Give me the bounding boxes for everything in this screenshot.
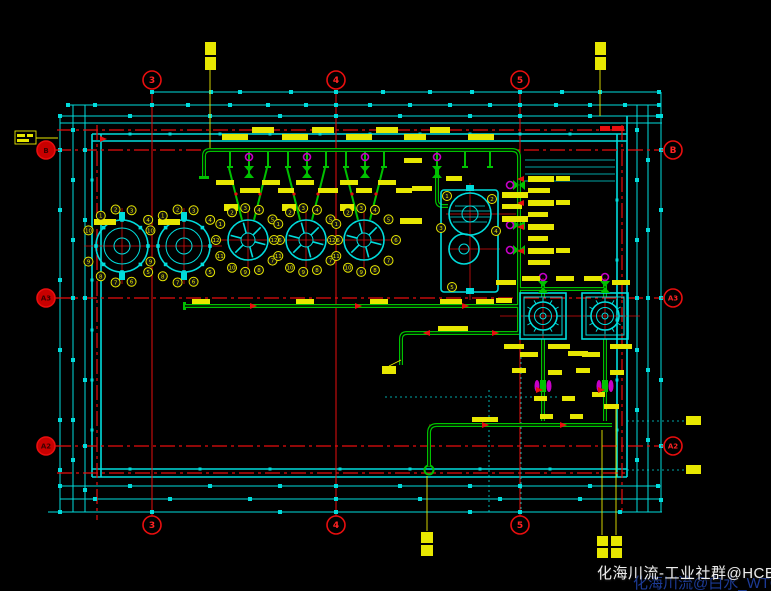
pipe-label-block — [240, 188, 260, 193]
vessel-flange-tick — [164, 263, 168, 267]
dimension-tick — [278, 510, 282, 514]
pipe-label-block — [502, 204, 522, 209]
vessel-flange-tick — [182, 270, 186, 274]
dimension-tick — [468, 510, 472, 514]
dimension-tick — [289, 90, 293, 94]
agitator-blade — [243, 223, 246, 234]
pipe-label-block — [296, 180, 314, 185]
dimension-tick — [623, 103, 627, 107]
grid-bubble-label: 3 — [149, 76, 155, 86]
dimension-tick — [428, 90, 432, 94]
dimension-tick — [659, 114, 663, 118]
valve-body — [600, 281, 610, 287]
callout-number: 5 — [146, 270, 150, 276]
dimension-tick — [150, 103, 154, 107]
grid-bubble-label: A3 — [668, 295, 678, 303]
grid-bubble: A3 — [664, 289, 682, 307]
grid-bubble-label: A2 — [668, 443, 678, 451]
dimension-tick — [128, 114, 132, 118]
agitator-blade — [308, 247, 311, 258]
grid-bubble: 5 — [511, 516, 529, 534]
pipe-label-block — [262, 180, 280, 185]
grid-bubble: A2 — [37, 437, 55, 455]
pipe-label-block — [604, 404, 619, 409]
pipe-label-block — [611, 536, 622, 546]
wall-tick — [219, 133, 222, 136]
building-walls — [92, 116, 684, 512]
dimension-tick — [83, 378, 87, 382]
dimension-tick — [228, 103, 232, 107]
dimension-tick — [334, 90, 338, 94]
pipe-label-block — [610, 344, 632, 349]
dimension-tick — [578, 497, 582, 501]
dimension-tick — [381, 90, 385, 94]
callout-number: 7 — [176, 280, 180, 286]
callout-number: 8 — [315, 268, 319, 274]
dimension-tick — [93, 497, 97, 501]
dimension-tick — [71, 178, 75, 182]
callout-number: 10 — [147, 228, 154, 234]
callout-number: 2 — [230, 210, 234, 216]
dimension-tick — [470, 90, 474, 94]
pipe-label-block — [468, 134, 494, 140]
wall-tick — [91, 329, 94, 332]
dimension-tick — [635, 178, 639, 182]
valve-handwheel — [507, 182, 514, 189]
pipe-label-block — [400, 218, 422, 224]
pipe-label-block — [597, 548, 608, 558]
pipe-label-block — [370, 299, 388, 304]
dimension-tick — [646, 158, 650, 162]
callout-number: 11 — [217, 254, 224, 260]
agitator-blade — [289, 235, 300, 238]
wall-tick — [569, 133, 572, 136]
dimension-tick — [518, 510, 522, 514]
pipe-label-block — [528, 200, 554, 206]
wall-tick — [199, 468, 202, 471]
pipe-label-block — [597, 536, 608, 546]
callout-number: 8 — [161, 274, 165, 280]
pipe-label-block — [340, 180, 358, 185]
callout-number: 1 — [335, 222, 339, 228]
cad-drawing-canvas: 1234567891012345678910123456789101112123… — [0, 0, 771, 591]
dimension-tick — [128, 484, 132, 488]
grid-bubble: B — [664, 141, 682, 159]
grid-bubble-label: B — [43, 147, 48, 155]
dimension-tick — [304, 103, 308, 107]
wall-tick — [549, 468, 552, 471]
grid-bubble-label: A3 — [41, 295, 51, 303]
pipe-label-block — [570, 414, 583, 419]
pipe-label-block — [584, 276, 602, 281]
callout-number: 1 — [445, 194, 449, 200]
dimension-tick — [659, 378, 663, 382]
callout-number: 5 — [387, 217, 391, 223]
pipe-label-block — [502, 216, 528, 222]
pipe-label-block — [382, 366, 396, 374]
dimension-tick — [83, 488, 87, 492]
dimension-tick — [71, 296, 75, 300]
callout-number: 2 — [490, 197, 494, 203]
valve-body — [302, 172, 312, 178]
dimension-tick — [488, 103, 492, 107]
pipe-label-block — [430, 127, 450, 133]
valve-handwheel — [507, 247, 514, 254]
vessel-flange-tick — [102, 263, 106, 267]
pipe-label-block — [216, 180, 234, 185]
agitator-blade — [366, 247, 369, 258]
callout-number: 2 — [288, 210, 292, 216]
wall-tick — [91, 379, 94, 382]
callout-number: 7 — [387, 259, 391, 265]
callout-number: 12 — [271, 238, 278, 244]
wall-tick — [339, 468, 342, 471]
callout-number: 9 — [149, 260, 153, 266]
dimension-tick — [334, 484, 338, 488]
callout-number: 8 — [99, 274, 103, 280]
dimension-tick — [93, 103, 97, 107]
flow-arrow — [492, 330, 499, 336]
vessel-flange-tick — [201, 263, 205, 267]
valve-body — [360, 166, 370, 172]
vessel-flange-tick — [156, 244, 160, 248]
pipe-label-block — [562, 396, 575, 401]
callout-number: 3 — [359, 206, 363, 212]
agitator-blade — [371, 242, 382, 245]
pipe-label-block — [222, 134, 248, 140]
callout-number: 5 — [208, 270, 212, 276]
valve-body — [302, 166, 312, 172]
pipe-label-block — [278, 188, 294, 193]
watermark-hcbbs: 化海川流-工业社群@HCBBS — [597, 562, 771, 583]
pipe-joint-dot — [234, 192, 237, 195]
dimension-tick — [66, 103, 70, 107]
dimension-tick — [646, 296, 650, 300]
dimension-tick — [554, 103, 558, 107]
wall-tick — [129, 133, 132, 136]
pipe-label-block — [556, 276, 574, 281]
dimension-tick — [168, 497, 172, 501]
pipe-label-block — [205, 57, 216, 70]
dimension-tick — [468, 484, 472, 488]
pipe-label-block — [612, 280, 630, 285]
valve-body — [360, 172, 370, 178]
pipe-label-block — [528, 248, 554, 254]
dimension-tick — [58, 484, 62, 488]
grid-bubble: A2 — [664, 437, 682, 455]
dimension-tick — [334, 103, 338, 107]
vessel-flange-tick — [102, 226, 106, 230]
pipe-label-block — [438, 326, 468, 331]
dimension-tick — [71, 128, 75, 132]
wall-tick — [616, 379, 619, 382]
callout-number: 3 — [243, 206, 247, 212]
agitator-blade — [250, 247, 253, 258]
callout-number: 1 — [219, 222, 223, 228]
callout-number: 3 — [192, 208, 196, 214]
pipe-drop-flange — [381, 166, 387, 168]
pipe-label-block — [282, 134, 308, 140]
dimension-tick — [588, 484, 592, 488]
grid-bubble-label: B — [670, 146, 677, 156]
wall-tick — [616, 319, 619, 322]
callout-number: 9 — [301, 270, 305, 276]
callout-number: 6 — [394, 238, 398, 244]
pipe-drop-flange — [285, 166, 291, 168]
grid-bubble-label: 4 — [333, 521, 339, 531]
pipe-label-block — [540, 414, 553, 419]
wall-tick — [269, 468, 272, 471]
dimension-tick — [150, 90, 154, 94]
agitator-blade — [369, 227, 377, 235]
pipe-label-block — [421, 532, 433, 543]
valve-body — [244, 166, 254, 172]
flow-arrow — [355, 303, 362, 309]
pipe-label-block — [312, 127, 334, 133]
dimension-tick — [659, 208, 663, 212]
dimension-tick — [71, 358, 75, 362]
dimension-tick — [334, 114, 338, 118]
pipe-drain-branch — [401, 333, 519, 365]
callout-number: 4 — [494, 229, 498, 235]
pipe-label-block — [396, 188, 412, 193]
dimension-tick — [58, 348, 62, 352]
pipe-label-block — [376, 127, 398, 133]
vessel-flange-tick — [120, 218, 124, 222]
callout-number: 2 — [176, 208, 180, 214]
vessel-flange-tick — [146, 244, 150, 248]
pipe-label-block — [528, 212, 548, 217]
wall-tick — [91, 179, 94, 182]
flow-arrow — [560, 422, 567, 428]
dimension-tick — [418, 497, 422, 501]
agitator-blade — [301, 223, 304, 234]
grid-bubble: 3 — [143, 71, 161, 89]
pipe-label-block — [446, 176, 462, 181]
pipe-label-block — [205, 42, 216, 55]
dimension-tick — [71, 458, 75, 462]
pipe-drop-flange — [227, 166, 233, 168]
pipe-joint-dot — [350, 192, 353, 195]
wall-tick — [616, 199, 619, 202]
flow-arrow — [423, 330, 430, 336]
pipe-drop-flange — [343, 166, 349, 168]
grid-bubble-label: 3 — [149, 521, 155, 531]
wall-tick — [616, 259, 619, 262]
grid-bubble: 4 — [327, 71, 345, 89]
callout-number: 8 — [257, 268, 261, 274]
dimension-tick — [635, 458, 639, 462]
dimension-tick — [186, 103, 190, 107]
callout-number: 11 — [275, 254, 282, 260]
pipe-label-block — [421, 545, 433, 556]
callout-number: 1 — [277, 222, 281, 228]
dimension-tick — [278, 114, 282, 118]
dimension-tick — [334, 497, 338, 501]
wall-tick — [91, 429, 94, 432]
pipe-label-block — [504, 344, 524, 349]
dimension-tick — [560, 90, 564, 94]
pipe-label-block — [528, 236, 548, 241]
pipe-label-block — [686, 416, 701, 425]
dimension-tick — [657, 103, 661, 107]
pipe-label-block — [472, 417, 498, 422]
pipe-label-block — [548, 344, 570, 349]
wall-tick — [91, 279, 94, 282]
dimension-tick — [618, 510, 622, 514]
callout-number: 2 — [346, 210, 350, 216]
pipe-label-block — [440, 299, 462, 304]
grid-bubble-label: 4 — [333, 76, 339, 86]
callout-number: 4 — [208, 218, 212, 224]
callout-number: 8 — [373, 268, 377, 274]
flow-arrow — [250, 303, 257, 309]
callout-number: 5 — [450, 285, 454, 291]
valve-body — [538, 281, 548, 287]
agitator-blade — [313, 242, 324, 245]
pipe-centerlines — [84, 158, 640, 425]
agitator-blade — [253, 227, 261, 235]
callout-number: 1 — [99, 214, 103, 220]
valve-handwheel — [507, 222, 514, 229]
callout-number: 6 — [130, 280, 134, 286]
agitator-blade — [255, 242, 266, 245]
callout-number: 12 — [329, 238, 336, 244]
pipe-joint-dot — [374, 192, 377, 195]
grid-bubble-label: A2 — [41, 443, 51, 451]
dimension-tick — [498, 497, 502, 501]
dimension-tick — [518, 103, 522, 107]
red-note-label — [600, 126, 610, 131]
dimension-tick — [58, 468, 62, 472]
dimension-tick — [58, 114, 62, 118]
callout-number: 4 — [315, 208, 319, 214]
pipe-label-block — [556, 248, 570, 253]
callout-number: 11 — [333, 254, 340, 260]
pipe-label-block — [534, 396, 547, 401]
dimension-tick — [518, 484, 522, 488]
pipe-label-block — [318, 188, 338, 193]
grid-bubble: 3 — [143, 516, 161, 534]
dimension-tick — [448, 103, 452, 107]
callout-number: 3 — [301, 206, 305, 212]
callout-number: 12 — [213, 238, 220, 244]
dimension-tick — [58, 278, 62, 282]
vessel-flange-tick — [139, 226, 143, 230]
dimension-tick — [646, 368, 650, 372]
pipe-label-block — [528, 224, 554, 230]
agitator-blade — [359, 223, 362, 234]
callout-number: 10 — [345, 266, 352, 272]
callout-number: 6 — [192, 280, 196, 286]
dimension-tick — [398, 114, 402, 118]
valve-body — [244, 172, 254, 178]
pipe-drop-flange — [487, 166, 493, 168]
pipe-label-block — [610, 370, 624, 375]
agitator-blade — [311, 227, 319, 235]
dimension-tick — [408, 103, 412, 107]
wall-tick — [409, 468, 412, 471]
pipe-drop-flange — [462, 166, 468, 168]
dimension-tick — [659, 498, 663, 502]
vessel-flange-tick — [164, 226, 168, 230]
grid-bubble: B — [37, 141, 55, 159]
pipe-label-block — [528, 176, 554, 182]
agitator-blade — [347, 235, 358, 238]
pipe-label-block — [528, 188, 550, 193]
dimension-tick — [334, 510, 338, 514]
vessel-flange-tick — [139, 263, 143, 267]
dimension-tick — [238, 90, 242, 94]
pipe-cap — [199, 176, 209, 179]
grid-bubble-label: 5 — [517, 521, 523, 531]
dimension-tick — [278, 484, 282, 488]
dimension-tick — [635, 348, 639, 352]
dimension-tick — [588, 114, 592, 118]
piping — [183, 150, 612, 475]
callout-number: 10 — [85, 228, 92, 234]
dimension-tick — [368, 103, 372, 107]
dimension-lines — [48, 92, 662, 512]
pipe-label-block — [502, 192, 528, 198]
callout-number: 10 — [229, 266, 236, 272]
callout-number: 10 — [287, 266, 294, 272]
pipe-label-block — [192, 299, 210, 304]
pipe-label-block — [595, 42, 606, 55]
vessel-flange-tick — [208, 244, 212, 248]
agitator-blade — [235, 245, 243, 253]
dimension-tick — [518, 90, 522, 94]
pipe-label-block — [548, 370, 562, 375]
dimension-tick — [646, 438, 650, 442]
dimension-tick — [635, 296, 639, 300]
dimension-tick — [208, 484, 212, 488]
wall-tick — [169, 133, 172, 136]
pipe-label-block — [556, 176, 570, 181]
vessel-flange-tick — [182, 218, 186, 222]
dimension-tick — [518, 114, 522, 118]
dimension-tick — [150, 510, 154, 514]
pipe-label-block — [582, 352, 600, 357]
flow-arrow — [482, 422, 489, 428]
pipe-label-block — [94, 219, 116, 225]
callout-number: 9 — [87, 260, 91, 266]
pipe-label-block — [346, 134, 372, 140]
dimension-tick — [656, 484, 660, 488]
dimension-tick — [468, 114, 472, 118]
valve-body — [432, 166, 442, 172]
pipe-label-block — [476, 299, 494, 304]
pipe-drop-flange — [323, 166, 329, 168]
pipe-label-block — [512, 368, 526, 373]
pipe-label-block — [520, 352, 538, 357]
dimension-tick — [83, 148, 87, 152]
callout-number: 9 — [243, 270, 247, 276]
grid-bubble: 5 — [511, 71, 529, 89]
piping-plan-drawing: 1234567891012345678910123456789101112123… — [0, 0, 771, 591]
dimension-tick — [83, 218, 87, 222]
dimension-tick — [83, 444, 87, 448]
dimension-tick — [266, 103, 270, 107]
red-note-label — [612, 126, 624, 131]
wall-tick — [129, 468, 132, 471]
callout-number: 4 — [373, 208, 377, 214]
dimension-tick — [58, 418, 62, 422]
dimension-tick — [58, 208, 62, 212]
pipe-label-block — [496, 280, 516, 285]
pipe-label-block — [356, 188, 372, 193]
dimension-tick — [657, 90, 661, 94]
